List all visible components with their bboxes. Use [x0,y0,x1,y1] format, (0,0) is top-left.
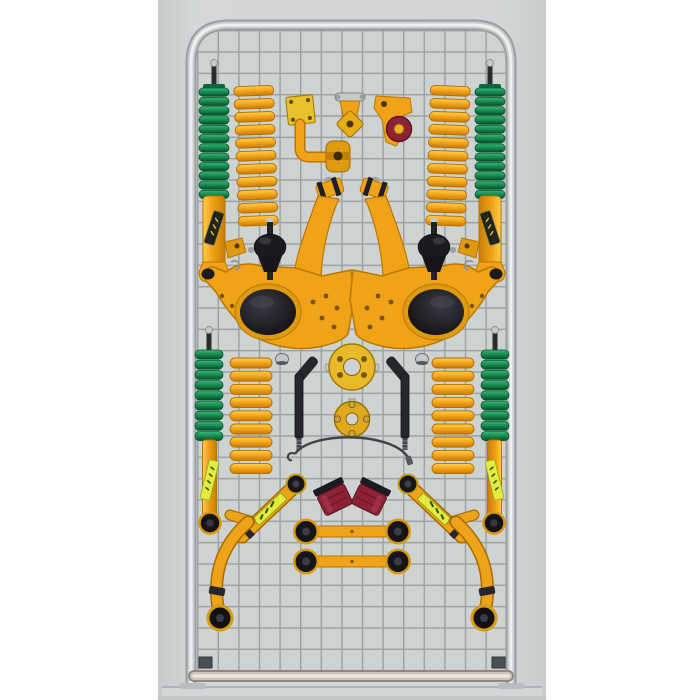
rear-coil-spring-left [230,358,272,474]
front-coil-spring-left [234,85,279,226]
suspension-kit-scene [158,0,546,700]
rear-coil-spring-right [432,358,474,474]
front-coil-spring-right [426,85,471,226]
suspension-kit-photo [158,0,546,700]
